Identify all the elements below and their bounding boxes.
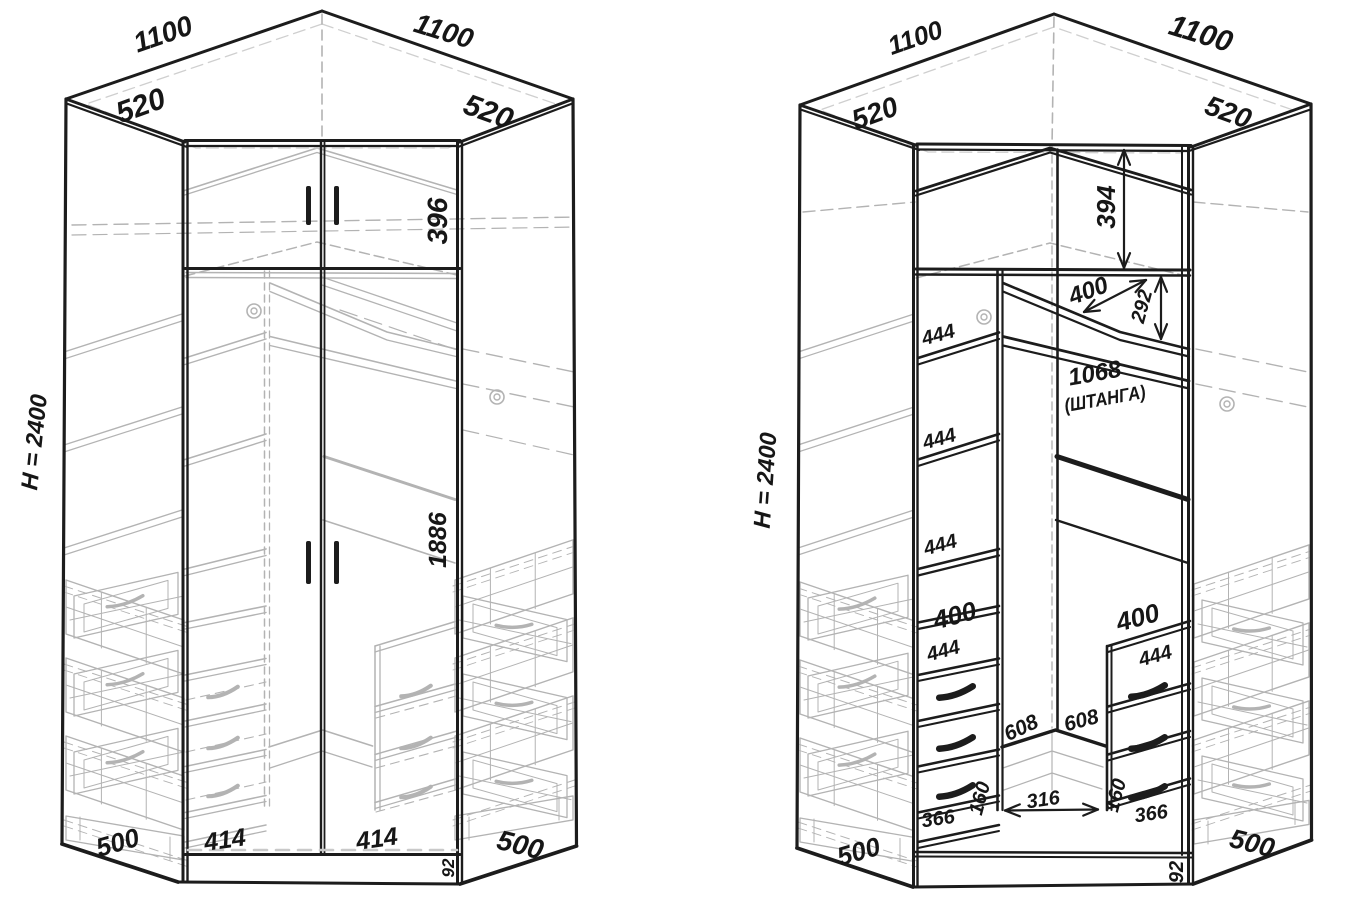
- svg-text:414: 414: [201, 823, 247, 857]
- svg-text:92: 92: [439, 858, 458, 877]
- svg-text:394: 394: [1091, 185, 1121, 229]
- svg-text:1886: 1886: [424, 511, 452, 568]
- svg-text:92: 92: [1166, 861, 1188, 883]
- svg-text:414: 414: [353, 822, 399, 856]
- svg-text:396: 396: [422, 197, 453, 244]
